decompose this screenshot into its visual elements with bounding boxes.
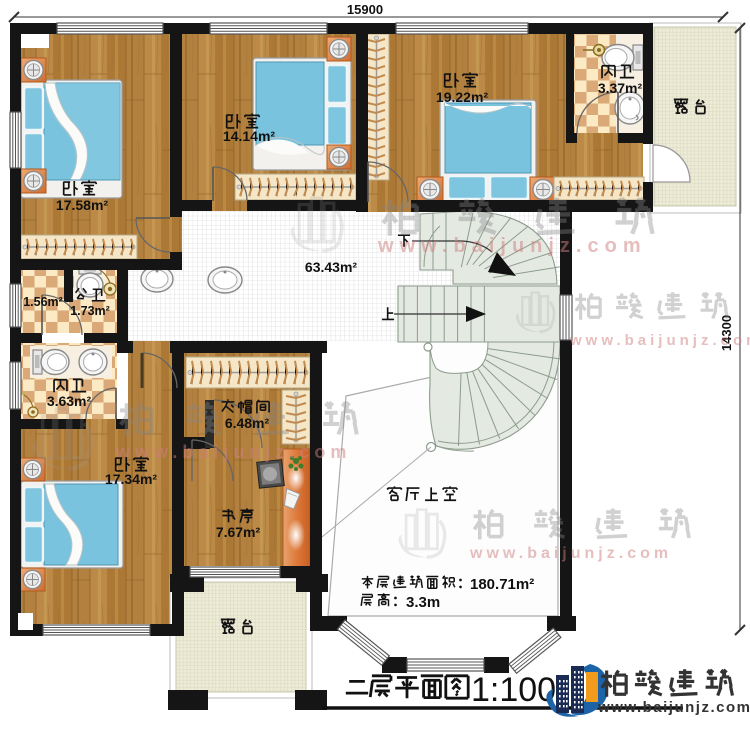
svg-text:3.63m²: 3.63m²: [47, 393, 92, 409]
svg-text:3.3m: 3.3m: [406, 594, 440, 611]
svg-text:1.73m²: 1.73m²: [70, 304, 110, 318]
svg-text:6.48m²: 6.48m²: [225, 415, 270, 431]
svg-text:7.67m²: 7.67m²: [216, 524, 261, 540]
svg-text:www.baijunjz.com: www.baijunjz.com: [597, 699, 750, 716]
svg-text:3.37m²: 3.37m²: [598, 80, 643, 96]
svg-text:：: ：: [392, 593, 406, 609]
svg-text:：: ：: [457, 575, 471, 591]
svg-text:15900: 15900: [347, 2, 383, 17]
svg-text:19.22m²: 19.22m²: [436, 89, 488, 105]
svg-text:17.34m²: 17.34m²: [105, 471, 157, 487]
svg-text:1.56m²: 1.56m²: [23, 295, 63, 309]
svg-text:www.baijunjz.com: www.baijunjz.com: [569, 332, 750, 349]
svg-text:63.43m²: 63.43m²: [305, 259, 357, 275]
svg-text:www.baijunjz.com: www.baijunjz.com: [115, 442, 351, 462]
svg-text:www.baijunjz.com: www.baijunjz.com: [469, 545, 672, 562]
svg-text:14.14m²: 14.14m²: [223, 128, 275, 144]
svg-text:1:100: 1:100: [471, 671, 556, 709]
svg-text:www.baijunjz.com: www.baijunjz.com: [377, 235, 647, 257]
svg-text:180.71m²: 180.71m²: [470, 576, 534, 593]
svg-text:17.58m²: 17.58m²: [56, 197, 108, 213]
